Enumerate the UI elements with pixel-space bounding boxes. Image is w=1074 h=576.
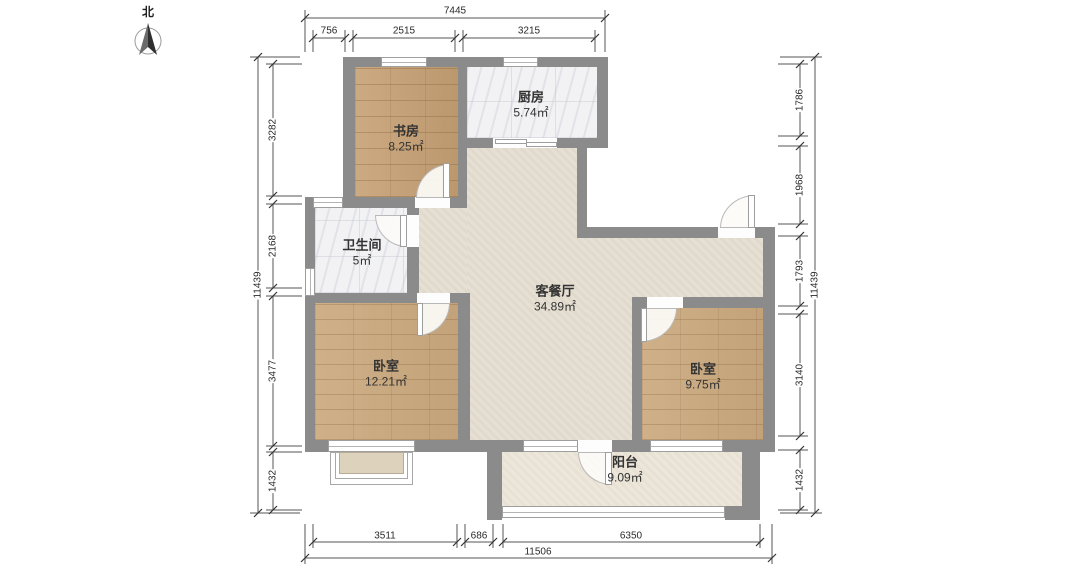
- north-label: 北: [142, 3, 154, 20]
- floor-plan: 书房 8.25㎡ 厨房 5.74㎡ 卫生间 5㎡ 客餐厅 34.89㎡ 卧室 1…: [0, 0, 1074, 576]
- dim-bottom-3: 6350: [619, 531, 643, 542]
- dim-right-5: 1432: [795, 468, 806, 492]
- kitchen-name: 厨房: [513, 90, 548, 106]
- bathroom-label: 卫生间 5㎡: [342, 238, 381, 269]
- kitchen-label: 厨房 5.74㎡: [513, 90, 548, 121]
- bathroom-door-opening: [407, 215, 419, 247]
- balcony-label: 阳台 9.09㎡: [607, 455, 642, 486]
- bedroom-left-name: 卧室: [365, 359, 407, 375]
- dim-right-1: 1786: [795, 88, 806, 112]
- wall-living-right-upper: [577, 143, 587, 238]
- bathroom-left-window: [305, 268, 315, 296]
- bathroom-name: 卫生间: [342, 238, 381, 254]
- dim-bottom-overall: 11506: [523, 547, 552, 558]
- study-window: [381, 57, 427, 67]
- bay-window-sill: [339, 452, 404, 474]
- living-balcony-window: [523, 440, 578, 452]
- kitchen-window: [503, 57, 538, 67]
- living-floor-lower: [587, 297, 632, 440]
- kitchen-slider-panel-1: [495, 139, 527, 144]
- wall-study-left: [343, 57, 355, 208]
- bedroom-right-door-leaf: [641, 308, 647, 342]
- wall-bedroom-left-right: [458, 293, 470, 452]
- dim-left-1: 3282: [268, 118, 279, 142]
- dim-top-3: 3215: [517, 26, 541, 37]
- bedroom-right-window: [650, 440, 723, 452]
- dim-right-3: 1793: [795, 259, 806, 283]
- balcony-glass-window: [502, 506, 725, 518]
- bathroom-door-leaf: [400, 215, 407, 247]
- bedroom-left-door-opening: [417, 293, 450, 303]
- bathroom-area: 5㎡: [342, 254, 381, 269]
- balcony-door-opening: [578, 440, 612, 452]
- balcony-name: 阳台: [607, 455, 642, 471]
- entry-door-opening: [718, 227, 755, 238]
- study-door-opening: [415, 197, 450, 208]
- bedroom-left-label: 卧室 12.21㎡: [365, 359, 407, 390]
- bay-window-top: [328, 440, 415, 452]
- wall-right-outer: [763, 227, 775, 452]
- hallway-floor: [419, 208, 467, 293]
- entry-floor: [587, 238, 763, 297]
- bedroom-right-area: 9.75㎡: [685, 378, 720, 393]
- bedroom-right-door-opening: [647, 297, 683, 308]
- bedroom-left-door-leaf: [417, 303, 423, 336]
- study-area: 8.25㎡: [388, 140, 423, 155]
- bedroom-right-name: 卧室: [685, 362, 720, 378]
- dim-left-3: 3477: [268, 359, 279, 383]
- dim-right-2: 1968: [795, 173, 806, 197]
- bathroom-top-window: [313, 197, 343, 208]
- dim-right-overall: 11439: [810, 270, 821, 299]
- study-door-leaf: [443, 163, 450, 198]
- living-area: 34.89㎡: [534, 300, 576, 315]
- living-label: 客餐厅 34.89㎡: [534, 284, 576, 315]
- study-name: 书房: [388, 124, 423, 140]
- wall-balcony-left: [487, 448, 502, 520]
- dim-right-4: 3140: [795, 363, 806, 387]
- balcony-area: 9.09㎡: [607, 471, 642, 486]
- dim-top-2: 2515: [392, 26, 416, 37]
- wall-left-outer: [305, 197, 315, 452]
- bedroom-left-area: 12.21㎡: [365, 375, 407, 390]
- north-arrow-right: [148, 23, 157, 55]
- dim-bottom-1: 3511: [373, 531, 397, 542]
- study-label: 书房 8.25㎡: [388, 124, 423, 155]
- kitchen-area: 5.74㎡: [513, 106, 548, 121]
- living-name: 客餐厅: [534, 284, 576, 300]
- wall-kitchen-right: [597, 57, 608, 148]
- dim-left-2: 2168: [268, 234, 279, 258]
- dim-left-overall: 11439: [253, 270, 264, 299]
- entry-door-leaf: [748, 195, 755, 228]
- north-arrow-left: [139, 23, 148, 55]
- dim-top-1: 756: [320, 26, 339, 37]
- wall-balcony-right: [742, 452, 760, 512]
- bedroom-right-label: 卧室 9.75㎡: [685, 362, 720, 393]
- dim-left-4: 1432: [268, 469, 279, 493]
- kitchen-slider-panel-2: [526, 142, 557, 147]
- compass-circle: [135, 28, 161, 54]
- dim-top-overall: 7445: [443, 6, 467, 17]
- dim-bottom-2: 686: [470, 531, 489, 542]
